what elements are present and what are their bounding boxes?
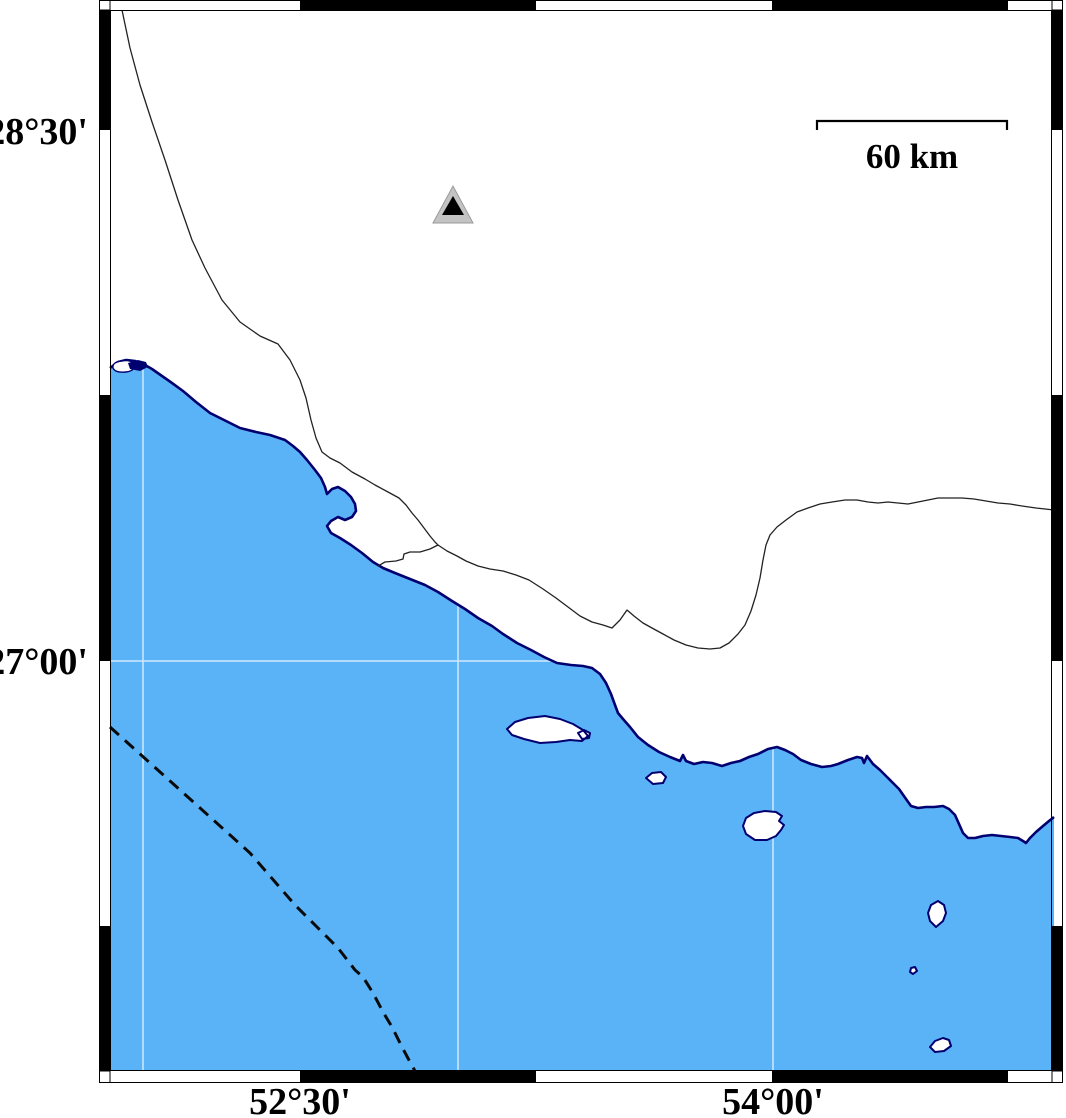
latitude-label-27-00: 27°00' xyxy=(0,641,88,683)
map-figure: 60 km 28°30' 27°00' 52°30' 54°00' xyxy=(0,0,1066,1118)
scale-bar-label: 60 km xyxy=(866,137,958,176)
latitude-label-28-30: 28°30' xyxy=(0,111,88,153)
longitude-label-54-00: 54°00' xyxy=(722,1081,824,1118)
longitude-label-52-30: 52°30' xyxy=(249,1081,351,1118)
map-canvas: 60 km 28°30' 27°00' 52°30' 54°00' xyxy=(0,0,1066,1118)
